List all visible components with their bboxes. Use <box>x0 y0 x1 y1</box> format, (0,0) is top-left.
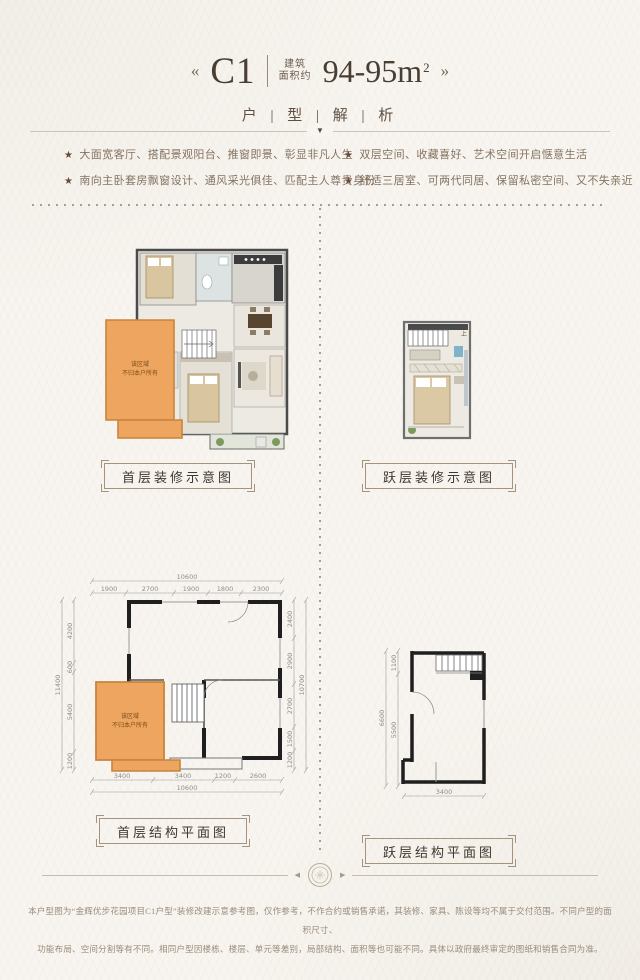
area-prefix: 建筑 面积约 <box>279 59 312 84</box>
first-floor-structural-plan: 10600 1900 2700 1900 1800 2300 11400 420… <box>52 570 322 802</box>
dim-label: 2700 <box>286 698 294 715</box>
unit-code: C1 <box>210 50 255 93</box>
feature-item: ★南向主卧套房飘窗设计、通风采光俱佳、匹配主人尊贵身份 <box>64 172 376 188</box>
dim-label: 6600 <box>378 710 386 727</box>
loft-structural-plan: 6600 1100 5500 3400 <box>378 636 510 808</box>
dim-label: 600 <box>66 661 74 673</box>
feature-item: ★大面宽客厅、搭配景观阳台、推窗即景、彰显非凡人生 <box>64 146 353 162</box>
dim-label: 5500 <box>390 722 398 739</box>
dim-label: 10600 <box>177 784 198 792</box>
disclaimer-line1: 本户型图为“金辉优步花园项目C1户型”装修改建示意参考图，仅作参考，不作合约或销… <box>26 902 614 940</box>
footer-ornament: ◀ ▶ <box>0 861 640 889</box>
corner-tick <box>508 460 516 468</box>
overlay-text: 该区域 <box>121 712 139 720</box>
corner-tick <box>101 460 109 468</box>
overlay-text: 该区域 <box>131 360 149 368</box>
right-chevrons-icon: » <box>441 61 450 81</box>
ornament-line <box>352 875 598 876</box>
dim-label: 2300 <box>253 585 270 593</box>
star-icon: ★ <box>344 176 353 187</box>
overlay-text: 不归本户所有 <box>122 369 158 377</box>
dim-label: 1200 <box>286 752 294 769</box>
feature-item: ★舒适三居室、可两代同居、保留私密空间、又不失亲近 <box>344 172 633 188</box>
corner-tick <box>362 460 370 468</box>
corner-tick <box>247 460 255 468</box>
dim-label: 1200 <box>66 753 74 770</box>
dim-label: 2900 <box>286 653 294 670</box>
header-divider: ▼ <box>30 131 610 132</box>
dim-label: 4200 <box>66 623 74 640</box>
corner-tick <box>242 839 250 847</box>
triangle-down-icon: ▼ <box>307 125 333 137</box>
overlay-text: 不归本户所有 <box>112 721 148 729</box>
dim-label: 3400 <box>114 772 131 780</box>
ornament-line <box>42 875 288 876</box>
arrow-left-icon: ◀ <box>295 872 300 879</box>
dim-label: 2600 <box>250 772 267 780</box>
page-subtitle: 户 | 型 | 解 | 析 <box>0 104 640 125</box>
caption-first-floor-structural: 首层结构平面图 <box>99 818 247 844</box>
dim-label: 1800 <box>217 585 234 593</box>
corner-tick <box>96 815 104 823</box>
dim-label: 2700 <box>142 585 159 593</box>
corner-tick <box>242 815 250 823</box>
dim-label: 1500 <box>286 731 294 748</box>
corner-tick <box>247 484 255 492</box>
left-chevrons-icon: « <box>191 61 200 81</box>
dim-label: 11400 <box>54 675 62 696</box>
loft-decor-plan: 上 <box>398 318 478 444</box>
caption-loft-decor: 跃层装修示意图 <box>365 463 513 489</box>
area-prefix-line1: 建筑 <box>284 59 306 70</box>
dim-label: 1900 <box>101 585 118 593</box>
corner-tick <box>96 839 104 847</box>
dim-label: 1100 <box>390 655 398 672</box>
dim-label: 1200 <box>215 772 232 780</box>
star-icon: ★ <box>64 150 73 161</box>
dim-label: 10700 <box>298 675 306 696</box>
dim-label: 3400 <box>175 772 192 780</box>
corner-tick <box>508 484 516 492</box>
caption-first-floor-decor: 首层装修示意图 <box>104 463 252 489</box>
first-floor-decor-plan: 该区域 不归本户所有 <box>62 242 292 460</box>
dim-label: 5400 <box>66 704 74 721</box>
title-divider <box>267 55 268 87</box>
dim-label: 10600 <box>177 573 198 581</box>
area-prefix-line2: 面积约 <box>279 71 312 82</box>
seal-icon <box>307 862 333 888</box>
corner-tick <box>508 835 516 843</box>
disclaimer: 本户型图为“金辉优步花园项目C1户型”装修改建示意参考图，仅作参考，不作合约或销… <box>26 902 614 959</box>
area-exponent: 2 <box>423 60 430 75</box>
dim-label: 3400 <box>436 788 453 796</box>
brochure-page: « C1 建筑 面积约 94-95m2 » 户 | 型 | 解 | 析 ▼ ★大… <box>0 0 640 980</box>
corner-tick <box>101 484 109 492</box>
star-icon: ★ <box>64 176 73 187</box>
dim-label: 2400 <box>286 611 294 628</box>
corner-tick <box>362 835 370 843</box>
stair-up-label: 上 <box>461 330 467 338</box>
star-icon: ★ <box>344 150 353 161</box>
corner-tick <box>362 484 370 492</box>
horizontal-dotted-separator <box>32 204 608 206</box>
dim-label: 1900 <box>183 585 200 593</box>
disclaimer-line2: 功能布局、空间分割等有不同。相同户型因楼栋、楼层、单元等差别，局部结构、面积等也… <box>26 940 614 959</box>
page-title: « C1 建筑 面积约 94-95m2 » <box>0 42 640 100</box>
area-value: 94-95m2 <box>323 53 430 90</box>
arrow-right-icon: ▶ <box>340 872 345 879</box>
feature-item: ★双层空间、收藏喜好、艺术空间开启惬意生活 <box>344 146 587 162</box>
